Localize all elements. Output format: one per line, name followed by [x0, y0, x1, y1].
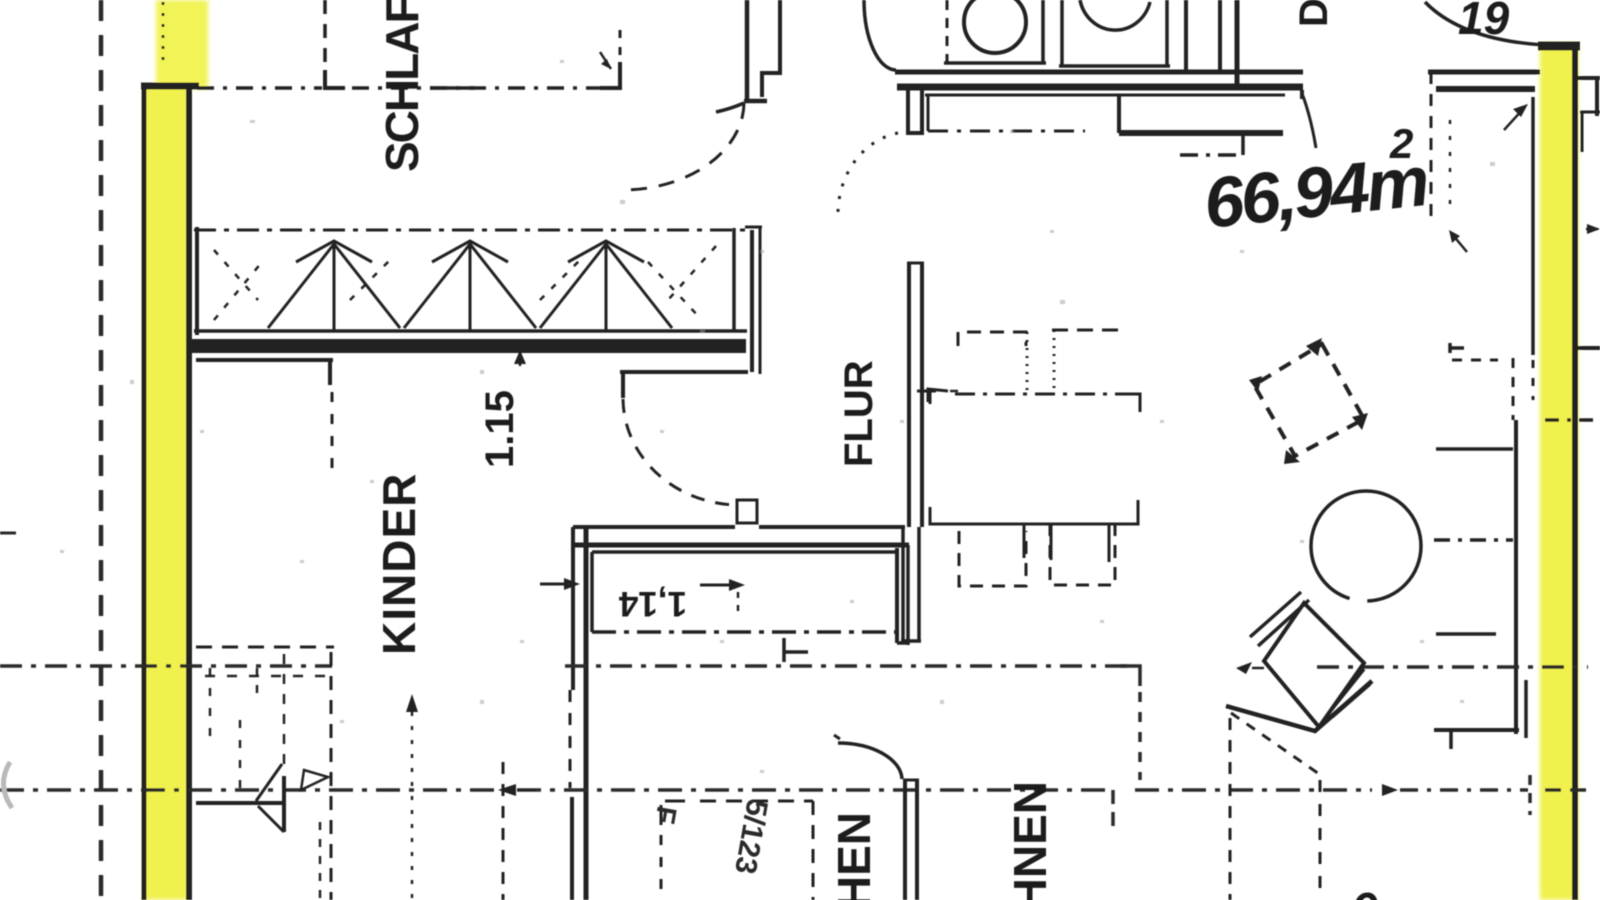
svg-text:9: 9 — [1352, 883, 1378, 900]
svg-text:19: 19 — [1458, 0, 1510, 44]
svg-text:1.15: 1.15 — [478, 390, 522, 468]
svg-text:2: 2 — [1389, 120, 1413, 167]
svg-text:KINDER: KINDER — [373, 473, 425, 655]
svg-text:DIELE: DIELE — [1292, 0, 1336, 27]
svg-text:WOHNEN: WOHNEN — [1004, 781, 1056, 900]
svg-text:SCHLAFEN: SCHLAFEN — [376, 0, 428, 172]
svg-text:FLUR: FLUR — [837, 360, 881, 467]
svg-text:1,14: 1,14 — [618, 584, 687, 623]
svg-text:KOCHEN: KOCHEN — [828, 812, 880, 900]
